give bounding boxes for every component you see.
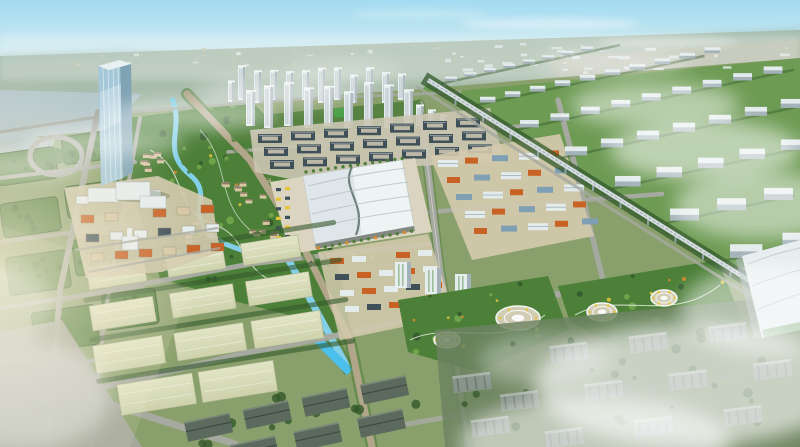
courtyard-inner	[307, 160, 323, 164]
warehouse-roof	[705, 47, 720, 50]
market-stall	[276, 217, 281, 220]
roof-ridge	[298, 145, 320, 146]
warehouse-roof	[520, 120, 539, 124]
tree	[631, 274, 635, 278]
factory-building	[519, 206, 535, 212]
tower-windows	[353, 78, 354, 101]
tree	[403, 231, 406, 234]
factory-building	[528, 170, 541, 176]
warehouse-roof	[445, 77, 457, 79]
market-stall	[285, 216, 290, 219]
flower-bed	[595, 304, 598, 307]
flower-bed	[657, 302, 660, 305]
shed-ridge	[501, 175, 521, 176]
factory-building	[465, 158, 478, 164]
tree	[197, 165, 202, 170]
warehouse-roof	[703, 80, 722, 84]
tree	[319, 168, 322, 171]
tree	[345, 241, 348, 244]
distant-shed	[463, 68, 473, 71]
market-stall	[276, 207, 281, 210]
tree	[496, 299, 499, 302]
flower-bed	[588, 311, 591, 314]
factory-building	[501, 226, 517, 232]
market-stall	[285, 197, 290, 200]
courtyard-inner	[301, 147, 317, 151]
office-shade	[437, 268, 441, 294]
cloud-wisp	[350, 9, 490, 19]
warehouse-roof	[503, 64, 515, 66]
cloud-wisp	[25, 127, 185, 157]
commercial-block	[340, 290, 354, 296]
factory-building	[555, 221, 568, 227]
market-stall	[285, 206, 290, 209]
roof-ridge	[430, 135, 452, 136]
warehouse-roof	[733, 73, 752, 77]
courtyard-inner	[466, 134, 482, 138]
warehouse-roof	[730, 244, 762, 251]
warehouse-roof	[781, 99, 800, 104]
tree	[388, 233, 391, 236]
distant-shed	[723, 66, 732, 68]
tower-windows	[399, 77, 400, 98]
flower-bed	[668, 291, 671, 294]
tree	[209, 158, 216, 165]
tree	[209, 154, 212, 157]
roof-ridge	[370, 153, 392, 154]
courtyard-inner	[433, 137, 449, 141]
tree	[224, 156, 228, 160]
courtyard-inner	[334, 144, 350, 148]
distant-shed	[521, 54, 528, 57]
tree	[218, 213, 225, 220]
roof-ridge	[292, 132, 314, 133]
tower-windows	[367, 86, 368, 124]
tree	[229, 255, 233, 259]
tree	[371, 161, 374, 164]
warehouse-roof	[680, 53, 695, 56]
courtyard-inner	[394, 126, 410, 130]
tree	[226, 216, 234, 224]
tree	[192, 149, 199, 156]
shed-ridge	[465, 214, 485, 215]
cloud-wisp	[102, 102, 278, 130]
tree	[678, 284, 684, 290]
tree	[629, 302, 637, 310]
roof-ridge	[325, 130, 347, 131]
shed-ridge	[546, 207, 566, 208]
viaduct-pier	[675, 237, 677, 243]
distant-shed	[495, 45, 503, 48]
tree	[518, 282, 523, 287]
warehouse-roof	[484, 68, 496, 70]
tree	[349, 164, 352, 167]
garden-center	[512, 315, 524, 322]
roof-ridge	[391, 125, 413, 126]
tree	[577, 291, 583, 297]
tree	[269, 213, 274, 218]
roof-ridge	[271, 161, 293, 162]
commercial-block	[352, 256, 366, 262]
office-shade	[407, 262, 411, 288]
tree	[447, 316, 450, 319]
roof-ridge	[364, 140, 386, 141]
tree	[367, 237, 370, 240]
tree	[624, 294, 630, 300]
distant-shed	[445, 59, 451, 62]
villa-roof	[263, 220, 270, 222]
tree	[208, 145, 212, 149]
courtyard-inner	[361, 129, 377, 133]
roof-ridge	[358, 127, 380, 128]
tree	[396, 232, 399, 235]
tower-windows	[365, 86, 366, 124]
tree	[360, 239, 363, 242]
villa-roof	[240, 182, 247, 184]
factory-building	[492, 209, 505, 215]
tree	[668, 279, 671, 282]
tree	[199, 161, 203, 165]
tree	[374, 236, 377, 239]
courtyard-inner	[268, 150, 284, 154]
tree	[401, 157, 404, 160]
factory-building	[447, 177, 460, 183]
villa-roof	[235, 187, 242, 189]
tree	[381, 235, 384, 238]
warehouse-roof	[550, 113, 569, 117]
cloud-wisp	[540, 49, 690, 75]
shed-ridge	[483, 195, 503, 196]
tree	[182, 147, 186, 151]
town-building	[201, 205, 214, 213]
roof-ridge	[397, 138, 419, 139]
roof-ridge	[403, 151, 425, 152]
tree	[489, 293, 492, 296]
warehouse-roof	[565, 146, 587, 151]
viaduct-pier	[510, 134, 512, 140]
commercial-block	[362, 288, 376, 294]
commercial-block	[345, 306, 359, 312]
flower-bed	[668, 302, 671, 305]
tree	[338, 242, 341, 245]
cloud-wisp	[598, 36, 738, 48]
tree	[331, 244, 334, 247]
tree	[327, 167, 330, 170]
factory-building	[456, 194, 472, 200]
viaduct-pier	[620, 203, 622, 209]
warehouse-roof	[530, 86, 545, 89]
viaduct-pier	[702, 254, 704, 260]
villa-roof	[223, 183, 230, 185]
tree	[412, 319, 415, 322]
roof-ridge	[259, 135, 281, 136]
flower-bed	[535, 317, 538, 320]
viaduct-pier	[455, 100, 457, 106]
roof-ridge	[424, 122, 446, 123]
tree	[187, 170, 191, 174]
tree	[599, 295, 603, 299]
commercial-block	[367, 304, 381, 310]
viaduct-pier	[482, 117, 484, 123]
market-stall	[276, 188, 281, 191]
roof-ridge	[265, 148, 287, 149]
commercial-block	[335, 274, 349, 280]
tree	[607, 298, 611, 302]
warehouse-roof	[523, 59, 535, 61]
warehouse-roof	[555, 80, 570, 83]
tree	[393, 158, 396, 161]
viaduct-pier	[565, 168, 567, 174]
garden-center	[660, 296, 667, 300]
commercial-block	[379, 270, 393, 276]
factory-building	[573, 201, 586, 207]
courtyard-inner	[328, 131, 344, 135]
tree	[356, 163, 359, 166]
cloud-wisp	[287, 63, 403, 81]
cloud-wisp	[610, 120, 800, 180]
roof-ridge	[304, 158, 326, 159]
tree	[324, 245, 327, 248]
viaduct-pier	[647, 220, 649, 226]
flower-bed	[526, 308, 529, 311]
courtyard-inner	[295, 134, 311, 138]
factory-building	[492, 155, 508, 161]
viaduct-pier	[592, 186, 594, 192]
courtyard-inner	[262, 137, 278, 141]
warehouse-roof	[480, 97, 495, 100]
distant-shed	[478, 60, 485, 62]
warehouse-roof	[581, 47, 593, 49]
warehouse-roof	[615, 176, 641, 182]
courtyard-inner	[427, 124, 443, 128]
tree	[386, 159, 389, 162]
courtyard-inner	[274, 163, 290, 167]
warehouse-roof	[580, 75, 595, 78]
tree	[238, 203, 241, 206]
cloud-wisp	[197, 80, 353, 104]
courtyard-inner	[340, 157, 356, 161]
courtyard-inner	[406, 152, 422, 156]
tower-windows	[401, 77, 402, 98]
roof-ridge	[463, 132, 485, 133]
distant-shed	[485, 64, 493, 67]
tree	[410, 229, 413, 232]
warehouse-roof	[745, 107, 767, 112]
villa-roof	[240, 192, 247, 194]
market-stall	[285, 187, 290, 190]
flower-bed	[499, 317, 502, 320]
tree	[181, 158, 189, 166]
commercial-block	[418, 250, 432, 256]
factory-building	[474, 175, 490, 181]
tree	[312, 169, 315, 172]
flower-bed	[508, 308, 511, 311]
tree	[304, 170, 307, 173]
warehouse-roof	[764, 66, 783, 70]
flower-bed	[657, 291, 660, 294]
office-glass	[398, 264, 400, 286]
tree	[682, 277, 686, 281]
cloud-wisp	[460, 18, 640, 30]
courtyard-inner	[367, 142, 383, 146]
viaduct-pier	[537, 151, 539, 157]
distant-shed	[780, 53, 790, 56]
market-stall	[276, 198, 281, 201]
courtyard-inner	[400, 139, 416, 143]
tree	[341, 165, 344, 168]
roof-ridge	[469, 145, 491, 146]
flower-bed	[607, 304, 610, 307]
fog-bank	[480, 334, 610, 386]
office-glass	[428, 270, 430, 292]
warehouse-roof	[464, 72, 476, 74]
factory-building	[582, 218, 598, 224]
roof-ridge	[331, 143, 353, 144]
factory-building	[537, 187, 553, 193]
tree	[352, 240, 355, 243]
factory-building	[474, 228, 487, 234]
commercial-block	[396, 252, 410, 258]
courtyard-inner	[373, 155, 389, 159]
flower-bed	[652, 297, 655, 300]
tree	[605, 289, 609, 293]
factory-building	[510, 189, 523, 195]
warehouse-roof	[505, 91, 520, 94]
tree	[457, 312, 462, 317]
flower-bed	[673, 297, 676, 300]
shed-ridge	[438, 163, 458, 164]
tree	[334, 166, 337, 169]
tree	[378, 160, 381, 163]
tree	[364, 162, 367, 165]
tree	[316, 246, 319, 249]
distant-shed	[520, 43, 527, 45]
villa-roof	[249, 230, 256, 232]
villa-roof	[245, 199, 252, 201]
commercial-block	[357, 272, 371, 278]
masterplan-scene	[0, 0, 800, 447]
distant-shed	[551, 47, 562, 49]
shed-ridge	[528, 226, 548, 227]
office-glass	[402, 264, 404, 286]
roof-ridge	[337, 156, 359, 157]
aerial-masterplan-rendering	[0, 0, 800, 447]
office-glass	[432, 270, 434, 292]
roof-ridge	[436, 148, 458, 149]
